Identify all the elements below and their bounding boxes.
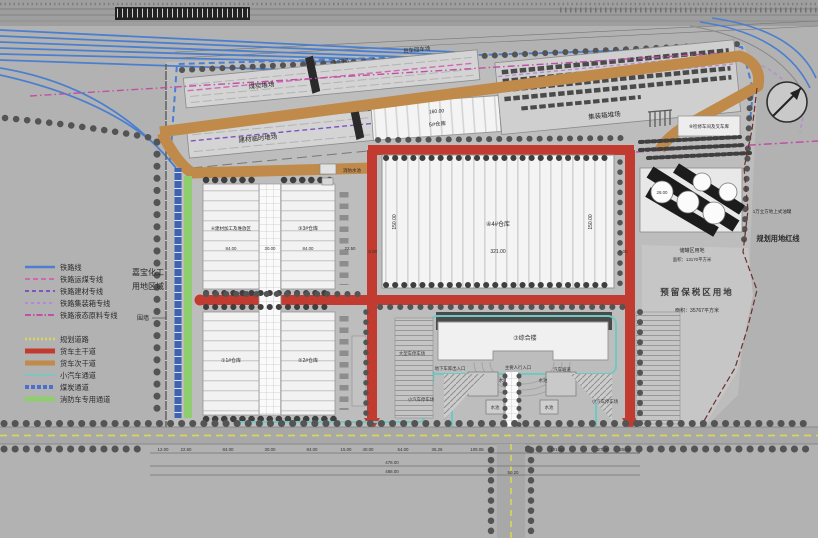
road-end-cap [195,295,206,306]
dim-w4-side-left: 6.00 [368,249,377,254]
dim-row-3: 22.50 [345,246,357,251]
oil-tank-icon [677,191,699,213]
oil-tank-icon [719,183,737,201]
legend-label-coal-corridor: 煤炭通道 [60,383,89,392]
dim-vroad: 50.20 [508,470,520,475]
dim-chain-1: 22.60 [181,447,193,452]
east-parking-lot [636,312,680,424]
dim-chain-8: 36.26 [432,447,444,452]
label-owner-2: 用地区域 [132,281,164,291]
axis-walkway [506,372,518,428]
label-parking-right: 小汽车停车场 [592,398,619,405]
dim-row-0: 84.00 [226,246,238,251]
dim-right-0: 101.18 [550,447,564,452]
dim-right-1: 27.00 [598,447,610,452]
oil-tank-icon [693,173,711,191]
label-processing: ⑥建材加工及堆放区 [211,225,252,232]
label-garage-entry: 地下车库出入口 [435,365,466,372]
legend-label-liquid-rail: 铁路液态原料专线 [60,311,118,320]
dim-w4-left: 150.00 [392,214,398,230]
label-pool-4: 水池 [545,404,554,410]
dim-chain-5: 15.00 [341,447,353,452]
dim-w4-width: 321.00 [490,249,506,255]
oil-tank-icon [703,202,725,224]
dim-chain-6: 40.00 [363,447,375,452]
site-plan: 煤炭堆场 1#门吊 货车回车场 建材临时堆场 2#门吊 160.00 5#仓库 … [0,0,818,538]
legend-label-main-road: 货车主干道 [60,347,96,356]
dim-chain-2: 84.00 [223,447,235,452]
label-owner-1: 嘉宝化工 [132,267,164,277]
label-warehouse-3: ③3#仓库 [298,225,318,232]
legend-label-coal-rail: 铁路运煤专线 [60,275,103,284]
legend-label-planned-road: 规划道路 [60,335,89,344]
dim-chain-0: 12.00 [158,447,170,452]
label-workshop: ⑧检修车间及叉车库 [689,123,730,130]
dim-chain-4: 84.00 [307,447,319,452]
label-reserved-area: 面积：35767平方米 [675,307,719,314]
label-warehouse-1: ①1#仓库 [221,357,241,364]
legend-label-material-rail: 铁路建材专线 [60,287,103,296]
legend-label-secondary-road: 货车次干道 [60,359,96,368]
legend-label-car-lane: 小汽车通道 [60,371,96,380]
label-tank-zone-area: 面积：13170平方米 [673,256,712,263]
dim-w4-right: 150.00 [588,214,594,230]
label-pedestrian-entry: 主要人行入口 [505,364,531,371]
legend-label-container-rail: 铁路集装箱专线 [60,299,110,308]
warehouse-processing [203,184,259,289]
label-pool-3: 水池 [491,404,500,410]
fire-pool-structure [320,164,336,174]
label-tank-zone: 储罐区用地 [679,247,704,254]
dim-chain-7: 54.00 [398,447,410,452]
dim-w4-side-right: 6.00 [619,249,628,254]
label-complex: ⑦综合楼 [513,334,536,342]
warehouse-3 [281,184,335,289]
dim-right-2: 25.00 [620,447,632,452]
dim-chain-3: 30.00 [265,447,277,452]
label-parking-left: 小汽车停车场 [408,396,435,403]
dim-total-1: 478.00 [385,460,399,465]
label-fence: 围墙 [137,314,149,322]
west-parking-lot [395,318,433,418]
plan-svg: 煤炭堆场 1#门吊 货车回车场 建材临时堆场 2#门吊 160.00 5#仓库 … [0,0,818,538]
south-vertical-road: 50.20 [491,444,531,538]
label-large-parking: 大型车停车场 [399,350,426,357]
dim-w5-length: 160.00 [429,108,445,115]
legend-label-rail: 铁路线 [60,263,82,272]
dim-chain-9: 109.06 [470,447,484,452]
legend-label-fire-lane: 消防车专用通道 [60,395,110,404]
central-spine [259,184,281,415]
dim-tank: 28.00 [657,190,669,195]
label-warehouse-4: ④4#仓库 [486,220,510,228]
label-oil-tanks: 1万立方地上式油罐 [753,208,792,215]
north-arrow-icon [767,82,807,122]
label-warehouse-2: ②2#仓库 [298,357,318,364]
dim-row-2: 84.00 [303,246,315,251]
label-car-ramp: 汽车坡道 [553,366,571,373]
label-fire-pool: 消防水池 [343,167,361,174]
label-pool-2: 水池 [539,377,548,383]
label-reserved-zone: 预留保税区用地 [660,287,734,297]
dim-total-2: 488.00 [385,469,399,474]
dim-row-1: 30.00 [265,246,277,251]
label-red-line: 规划用地红线 [755,234,800,243]
